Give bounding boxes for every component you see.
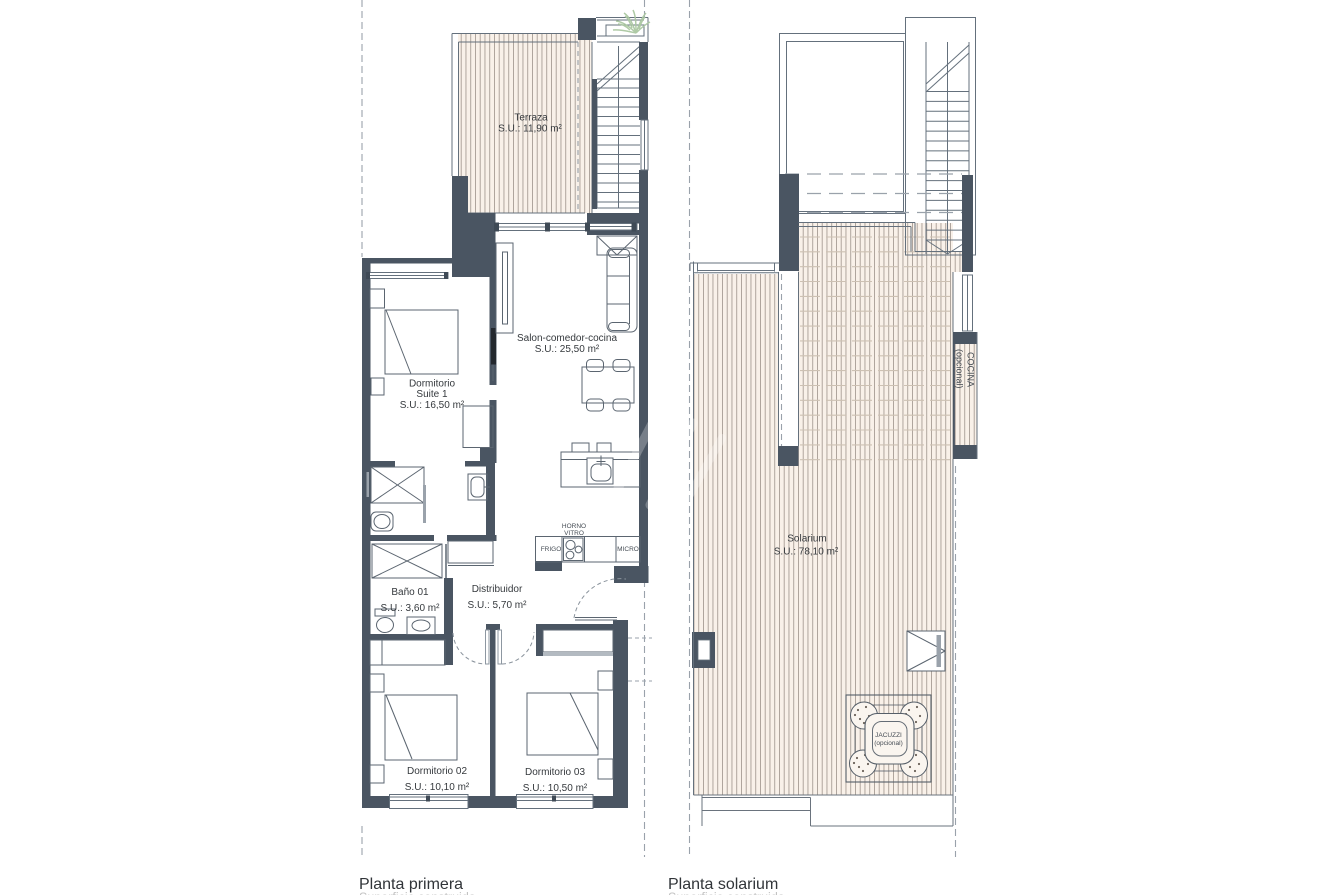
svg-text:Terraza: Terraza: [514, 113, 548, 124]
svg-text:MICRO: MICRO: [617, 546, 639, 553]
svg-text:VITRO: VITRO: [564, 530, 584, 537]
svg-text:(opcional): (opcional): [874, 740, 903, 747]
svg-text:S.U.: 10,10 m²: S.U.: 10,10 m²: [405, 782, 470, 793]
svg-text:Solarium: Solarium: [787, 534, 826, 545]
svg-text:(opcional): (opcional): [955, 349, 965, 389]
svg-text:JACUZZI: JACUZZI: [875, 732, 902, 739]
svg-text:S.U.: 5,70 m²: S.U.: 5,70 m²: [468, 600, 528, 611]
svg-text:S.U.: 16,50 m²: S.U.: 16,50 m²: [400, 400, 465, 411]
svg-text:Distribuidor: Distribuidor: [472, 584, 523, 595]
svg-text:Dormitorio 03: Dormitorio 03: [525, 767, 585, 778]
svg-text:Baño 01: Baño 01: [391, 587, 429, 598]
svg-text:HORNO: HORNO: [562, 523, 586, 530]
svg-text:Superficie construida: Superficie construida: [359, 891, 476, 895]
svg-text:FRIGO: FRIGO: [541, 546, 562, 553]
svg-text:Salon-comedor-cocina: Salon-comedor-cocina: [517, 333, 617, 344]
svg-text:S.U.: 25,50 m²: S.U.: 25,50 m²: [535, 344, 600, 355]
svg-text:Superficie construida: Superficie construida: [668, 891, 785, 895]
svg-text:Suite 1: Suite 1: [416, 389, 448, 400]
svg-text:Dormitorio 02: Dormitorio 02: [407, 766, 467, 777]
svg-text:COCINA: COCINA: [966, 352, 976, 387]
svg-text:S.U.: 10,50 m²: S.U.: 10,50 m²: [523, 783, 588, 794]
svg-text:S.U.: 3,60 m²: S.U.: 3,60 m²: [381, 603, 441, 614]
svg-text:S.U.: 78,10 m²: S.U.: 78,10 m²: [774, 547, 839, 558]
svg-text:S.U.: 11,90 m²: S.U.: 11,90 m²: [498, 124, 562, 135]
